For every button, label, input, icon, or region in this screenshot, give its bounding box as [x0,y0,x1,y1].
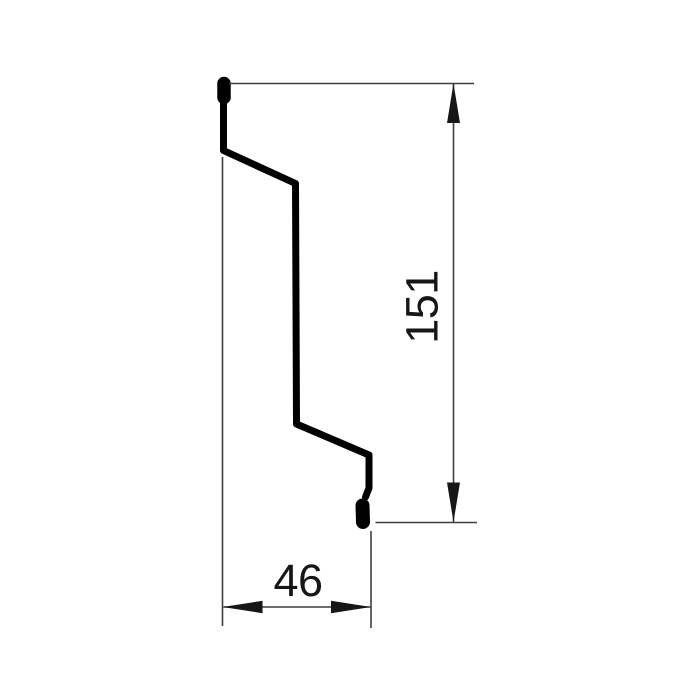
drawing-page: 151 46 [0,0,700,700]
profile-outline [224,84,370,523]
profile-bottom-bead [363,506,364,523]
height-dimension: 151 [229,84,477,523]
profile-step-line [224,99,370,497]
arrowhead-down-icon [447,483,460,523]
width-dimension-label: 46 [273,555,322,606]
arrowhead-right-icon [331,601,371,613]
height-dimension-label: 151 [397,270,448,344]
arrowhead-up-icon [447,84,460,124]
drawing-canvas: 151 46 [0,0,700,700]
arrowhead-left-icon [223,601,263,613]
